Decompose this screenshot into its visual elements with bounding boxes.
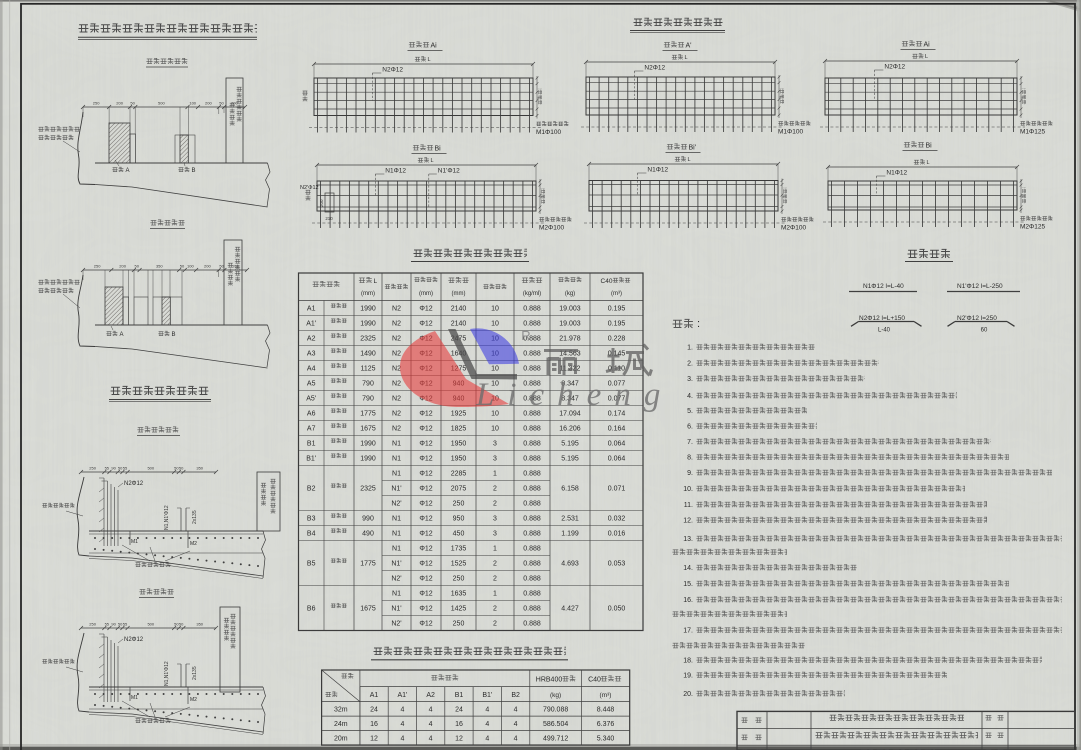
- svg-text:L: L: [927, 160, 930, 166]
- svg-text:790.088: 790.088: [543, 706, 568, 713]
- svg-text:90: 90: [111, 622, 116, 627]
- svg-text:A1: A1: [370, 692, 379, 699]
- svg-text:50: 50: [180, 264, 185, 269]
- svg-text:4: 4: [514, 706, 518, 713]
- svg-text:L: L: [431, 158, 434, 164]
- svg-text:0.053: 0.053: [608, 561, 626, 568]
- svg-text:1425: 1425: [451, 606, 467, 613]
- svg-text:24: 24: [370, 706, 378, 713]
- svg-text:(mm): (mm): [419, 291, 433, 297]
- svg-text:N2Φ12: N2Φ12: [382, 67, 403, 74]
- svg-text:3: 3: [493, 456, 497, 463]
- svg-text:0.888: 0.888: [523, 306, 541, 313]
- svg-text:N1,N1'Φ12: N1,N1'Φ12: [164, 661, 170, 686]
- svg-text:24: 24: [455, 706, 463, 713]
- svg-text:1950: 1950: [451, 441, 467, 448]
- svg-text:19.003: 19.003: [559, 321, 581, 328]
- svg-text:1925: 1925: [451, 411, 467, 418]
- svg-text:200: 200: [119, 264, 126, 269]
- svg-text::: :: [697, 318, 700, 330]
- svg-text:Φ12: Φ12: [419, 411, 432, 418]
- svg-text:(m³): (m³): [600, 692, 612, 699]
- svg-text:4.: 4.: [687, 393, 693, 400]
- svg-text:1125: 1125: [360, 366, 375, 373]
- svg-text:200: 200: [319, 199, 324, 207]
- svg-text:19.003: 19.003: [559, 306, 581, 313]
- svg-text:950: 950: [453, 516, 465, 523]
- svg-text:500: 500: [147, 466, 154, 471]
- svg-text:M2: M2: [190, 697, 197, 703]
- svg-text:M1Φ100: M1Φ100: [536, 129, 561, 136]
- svg-text:16: 16: [370, 721, 378, 728]
- svg-text:N2: N2: [392, 351, 401, 358]
- svg-text:Φ12: Φ12: [419, 516, 432, 523]
- svg-text:1: 1: [493, 546, 497, 553]
- svg-text:32m: 32m: [334, 706, 348, 713]
- svg-text:A7: A7: [307, 426, 316, 433]
- svg-text:250: 250: [453, 501, 465, 508]
- svg-text:2.: 2.: [687, 361, 693, 368]
- svg-text:500: 500: [158, 101, 165, 106]
- svg-text:0.016: 0.016: [608, 531, 626, 538]
- svg-text:M1: M1: [131, 695, 138, 701]
- svg-text:250: 250: [93, 101, 100, 106]
- svg-text:14.: 14.: [683, 565, 693, 572]
- svg-text:17.: 17.: [683, 628, 693, 635]
- svg-text:B2: B2: [511, 692, 520, 699]
- svg-text:1.: 1.: [687, 345, 693, 352]
- svg-text:0.064: 0.064: [608, 456, 626, 463]
- svg-text:N2': N2': [391, 576, 401, 583]
- svg-text:0.888: 0.888: [523, 591, 541, 598]
- svg-text:Φ12: Φ12: [419, 471, 432, 478]
- svg-text:2.531: 2.531: [561, 516, 579, 523]
- svg-text:Bi: Bi: [435, 146, 442, 153]
- svg-text:4: 4: [485, 735, 489, 742]
- svg-text:0.888: 0.888: [523, 351, 541, 358]
- svg-text:586.504: 586.504: [543, 721, 568, 728]
- svg-text:8.: 8.: [687, 455, 693, 462]
- svg-text:A2: A2: [426, 692, 435, 699]
- svg-text:1675: 1675: [360, 426, 376, 433]
- svg-text:4: 4: [514, 721, 518, 728]
- svg-text:8.448: 8.448: [597, 706, 615, 713]
- svg-text:2140: 2140: [451, 306, 467, 313]
- svg-text:12: 12: [455, 735, 463, 742]
- svg-text:Φ12: Φ12: [419, 486, 432, 493]
- svg-text:R: R: [521, 328, 530, 343]
- svg-text:(m³): (m³): [611, 291, 622, 297]
- svg-text:B3: B3: [307, 516, 316, 523]
- svg-text:19.: 19.: [683, 673, 693, 680]
- svg-text:250: 250: [94, 264, 101, 269]
- svg-text:HRB400: HRB400: [536, 677, 563, 684]
- svg-text:0.888: 0.888: [523, 561, 541, 568]
- svg-text:13.: 13.: [683, 536, 693, 543]
- svg-text:5.340: 5.340: [597, 735, 615, 742]
- svg-text:N2Φ12: N2Φ12: [124, 481, 144, 487]
- svg-text:N2Φ12: N2Φ12: [124, 637, 144, 643]
- svg-text:500: 500: [147, 622, 154, 627]
- svg-text:6.: 6.: [687, 424, 693, 431]
- svg-text:N2: N2: [392, 306, 401, 313]
- svg-text:3.: 3.: [687, 376, 693, 383]
- svg-text:2140: 2140: [451, 321, 467, 328]
- svg-text:N1Φ12: N1Φ12: [886, 170, 907, 177]
- svg-text:B5: B5: [307, 561, 316, 568]
- svg-text:N1': N1': [391, 561, 401, 568]
- svg-text:N1Φ12: N1Φ12: [647, 167, 668, 174]
- svg-text:0.064: 0.064: [608, 441, 626, 448]
- svg-text:N2: N2: [392, 336, 401, 343]
- svg-text:A5': A5': [306, 396, 316, 403]
- svg-text:N2Φ12: N2Φ12: [644, 65, 665, 72]
- svg-text:4.693: 4.693: [561, 561, 579, 568]
- svg-text:0.888: 0.888: [523, 486, 541, 493]
- svg-text:A: A: [126, 168, 130, 174]
- svg-text:350: 350: [196, 622, 203, 627]
- svg-text:N1': N1': [391, 486, 401, 493]
- svg-text:A6: A6: [307, 411, 316, 418]
- svg-text:4: 4: [514, 735, 518, 742]
- svg-text:9.: 9.: [687, 470, 693, 477]
- svg-text:6.376: 6.376: [597, 721, 615, 728]
- svg-text:0.888: 0.888: [523, 621, 541, 628]
- svg-text:4: 4: [429, 721, 433, 728]
- svg-text:(kg/ml): (kg/ml): [523, 291, 541, 297]
- svg-text:1735: 1735: [451, 546, 467, 553]
- svg-text:0.195: 0.195: [608, 306, 626, 313]
- svg-text:M2Φ100: M2Φ100: [539, 225, 564, 232]
- svg-text:0.071: 0.071: [608, 486, 626, 493]
- svg-text:1825: 1825: [451, 426, 467, 433]
- svg-text:1990: 1990: [360, 441, 376, 448]
- svg-text:M2: M2: [190, 541, 197, 547]
- svg-text:55: 55: [123, 466, 128, 471]
- svg-text:Φ12: Φ12: [419, 576, 432, 583]
- svg-text:Licheng: Licheng: [475, 377, 673, 413]
- svg-text:0.888: 0.888: [523, 471, 541, 478]
- svg-text:(kg): (kg): [565, 291, 575, 297]
- svg-text:24m: 24m: [334, 721, 348, 728]
- svg-text:2: 2: [493, 576, 497, 583]
- svg-text:N1Φ12 l=L-40: N1Φ12 l=L-40: [863, 283, 904, 290]
- svg-text:350: 350: [156, 264, 163, 269]
- svg-text:(mm): (mm): [361, 291, 375, 297]
- svg-text:21.978: 21.978: [559, 336, 581, 343]
- svg-text:L: L: [374, 278, 378, 285]
- svg-text:B1: B1: [307, 441, 316, 448]
- svg-text:Φ12: Φ12: [419, 621, 432, 628]
- svg-text:L: L: [925, 54, 928, 60]
- svg-text:N1,N1'Φ12: N1,N1'Φ12: [164, 505, 170, 530]
- svg-text:200: 200: [205, 101, 212, 106]
- svg-text:10: 10: [491, 321, 499, 328]
- svg-text:M1Φ100: M1Φ100: [778, 129, 803, 136]
- svg-text:Φ12: Φ12: [419, 501, 432, 508]
- svg-text:6.158: 6.158: [561, 486, 579, 493]
- svg-text:250: 250: [89, 622, 96, 627]
- svg-text:0.050: 0.050: [608, 606, 626, 613]
- svg-text:7.: 7.: [687, 439, 693, 446]
- svg-text:4: 4: [485, 721, 489, 728]
- svg-text:1: 1: [493, 591, 497, 598]
- svg-text:A': A': [686, 43, 692, 50]
- svg-text:20.: 20.: [683, 691, 693, 698]
- svg-text:200: 200: [204, 264, 211, 269]
- svg-text:0.888: 0.888: [523, 441, 541, 448]
- svg-text:B6: B6: [307, 606, 316, 613]
- svg-text:1: 1: [493, 471, 497, 478]
- svg-text:M2Φ100: M2Φ100: [781, 225, 806, 232]
- svg-text:790: 790: [362, 381, 374, 388]
- svg-text:N1: N1: [392, 516, 401, 523]
- svg-text:20m: 20m: [334, 735, 348, 742]
- svg-text:0.888: 0.888: [523, 366, 541, 373]
- svg-text:Φ12: Φ12: [419, 546, 432, 553]
- svg-text:N1: N1: [392, 456, 401, 463]
- svg-text:100: 100: [187, 264, 194, 269]
- svg-text:1525: 1525: [451, 561, 467, 568]
- svg-text:Φ12: Φ12: [419, 591, 432, 598]
- svg-text:5.195: 5.195: [561, 456, 579, 463]
- svg-text:100: 100: [189, 101, 196, 106]
- svg-text:0.888: 0.888: [523, 516, 541, 523]
- svg-text:2: 2: [493, 561, 497, 568]
- svg-text:499.712: 499.712: [543, 735, 568, 742]
- svg-text:N1': N1': [391, 606, 401, 613]
- svg-text:490: 490: [362, 531, 374, 538]
- svg-text:N2'Φ12: N2'Φ12: [300, 185, 319, 191]
- svg-text:N2: N2: [392, 411, 401, 418]
- svg-text:16: 16: [455, 721, 463, 728]
- svg-text:50: 50: [219, 101, 224, 106]
- svg-text:4: 4: [400, 735, 404, 742]
- svg-text:55: 55: [123, 622, 128, 627]
- svg-text:0.888: 0.888: [523, 321, 541, 328]
- svg-text:B1: B1: [455, 692, 464, 699]
- svg-text:Φ12: Φ12: [419, 561, 432, 568]
- svg-text:A1': A1': [306, 321, 316, 328]
- svg-text:18.: 18.: [683, 658, 693, 665]
- svg-text:0.888: 0.888: [523, 531, 541, 538]
- svg-text:Ai: Ai: [924, 42, 931, 49]
- svg-text:1775: 1775: [360, 561, 376, 568]
- svg-text:Φ12: Φ12: [419, 306, 432, 313]
- svg-text:2: 2: [493, 501, 497, 508]
- svg-text:16.206: 16.206: [559, 426, 581, 433]
- svg-text:11.: 11.: [684, 502, 693, 509]
- svg-text:C40: C40: [601, 278, 613, 285]
- svg-text:2075: 2075: [451, 486, 467, 493]
- svg-text:1990: 1990: [360, 321, 376, 328]
- svg-text:350: 350: [196, 466, 203, 471]
- svg-text:Ai: Ai: [431, 43, 438, 50]
- svg-text:10: 10: [491, 426, 499, 433]
- svg-text:0.195: 0.195: [608, 321, 626, 328]
- svg-text:250: 250: [453, 621, 465, 628]
- svg-text:12.: 12.: [683, 518, 693, 525]
- svg-text:0.888: 0.888: [523, 426, 541, 433]
- svg-text:2285: 2285: [451, 471, 467, 478]
- svg-text:N1: N1: [392, 591, 401, 598]
- svg-text:1675: 1675: [360, 606, 376, 613]
- svg-text:N1: N1: [392, 441, 401, 448]
- svg-text:1990: 1990: [360, 306, 376, 313]
- svg-text:N2: N2: [392, 381, 401, 388]
- svg-text:N2': N2': [391, 621, 401, 628]
- svg-text:50: 50: [179, 622, 184, 627]
- svg-text:B1': B1': [306, 456, 316, 463]
- svg-text:1490: 1490: [360, 351, 376, 358]
- svg-text:10: 10: [491, 366, 499, 373]
- svg-text:50: 50: [130, 101, 135, 106]
- svg-text:50: 50: [179, 466, 184, 471]
- svg-text:Φ12: Φ12: [419, 531, 432, 538]
- svg-text:1635: 1635: [451, 591, 467, 598]
- svg-text:B: B: [172, 332, 176, 338]
- svg-text:1.199: 1.199: [561, 531, 579, 538]
- svg-text:210: 210: [325, 216, 333, 221]
- svg-text:N1'Φ12: N1'Φ12: [438, 168, 460, 175]
- svg-text:4: 4: [485, 706, 489, 713]
- svg-text:0.888: 0.888: [523, 546, 541, 553]
- svg-text:250: 250: [89, 466, 96, 471]
- svg-text:790: 790: [362, 396, 374, 403]
- svg-text:0.888: 0.888: [523, 501, 541, 508]
- svg-text:L: L: [685, 55, 688, 61]
- svg-text:5.195: 5.195: [561, 441, 579, 448]
- svg-text:990: 990: [362, 516, 374, 523]
- svg-text:4: 4: [429, 735, 433, 742]
- svg-text:B: B: [192, 168, 196, 174]
- svg-text:250: 250: [453, 576, 465, 583]
- svg-text:5.: 5.: [687, 408, 693, 415]
- svg-text:N1'Φ12 l=L-250: N1'Φ12 l=L-250: [957, 283, 1003, 290]
- svg-text:N1: N1: [392, 546, 401, 553]
- svg-text:Φ12: Φ12: [419, 426, 432, 433]
- svg-text:M2Φ125: M2Φ125: [1020, 224, 1045, 231]
- svg-text:N2: N2: [392, 321, 401, 328]
- svg-text:2x135: 2x135: [192, 666, 198, 680]
- svg-text:0.032: 0.032: [608, 516, 626, 523]
- svg-text:N2': N2': [391, 501, 401, 508]
- svg-text:A1': A1': [397, 692, 407, 699]
- svg-text:1950: 1950: [451, 456, 467, 463]
- svg-text:N1: N1: [392, 471, 401, 478]
- svg-text:0.888: 0.888: [523, 606, 541, 613]
- svg-text:L: L: [428, 57, 431, 63]
- svg-text:2: 2: [493, 606, 497, 613]
- svg-text:3: 3: [493, 441, 497, 448]
- svg-text:N2: N2: [392, 366, 401, 373]
- svg-text:3: 3: [493, 531, 497, 538]
- svg-text:M1Φ125: M1Φ125: [1020, 129, 1045, 136]
- svg-text:2: 2: [493, 486, 497, 493]
- svg-text:50: 50: [134, 264, 139, 269]
- svg-text:0.888: 0.888: [523, 576, 541, 583]
- svg-text:200: 200: [116, 101, 123, 106]
- svg-text:B4: B4: [307, 531, 316, 538]
- svg-text:C40: C40: [588, 677, 601, 684]
- svg-text:(kg): (kg): [550, 692, 561, 699]
- svg-text:1990: 1990: [360, 456, 376, 463]
- svg-text:(mm): (mm): [452, 291, 466, 297]
- svg-text:L: L: [688, 157, 691, 163]
- svg-text:16.: 16.: [683, 597, 693, 604]
- svg-text:Φ12: Φ12: [419, 321, 432, 328]
- svg-text:15.: 15.: [683, 581, 693, 588]
- svg-text:4: 4: [400, 721, 404, 728]
- svg-text:B1': B1': [482, 692, 492, 699]
- svg-text:N1Φ12: N1Φ12: [385, 168, 406, 175]
- svg-text:0.888: 0.888: [523, 456, 541, 463]
- svg-text:3: 3: [493, 516, 497, 523]
- svg-text:0.228: 0.228: [608, 336, 626, 343]
- svg-text:450: 450: [453, 531, 465, 538]
- svg-text:1775: 1775: [360, 411, 376, 418]
- svg-text:N2Φ12: N2Φ12: [884, 64, 905, 71]
- svg-text:4: 4: [429, 706, 433, 713]
- svg-text:A1: A1: [307, 306, 316, 313]
- svg-text:10: 10: [491, 306, 499, 313]
- svg-text:55: 55: [105, 622, 110, 627]
- svg-text:M1: M1: [131, 539, 138, 545]
- svg-text:Bi': Bi': [689, 145, 697, 152]
- svg-text:A5: A5: [307, 381, 316, 388]
- svg-text:Φ12: Φ12: [419, 441, 432, 448]
- svg-text:4: 4: [400, 706, 404, 713]
- svg-text:B2: B2: [307, 486, 316, 493]
- svg-text:A3: A3: [307, 351, 316, 358]
- svg-text:A: A: [120, 332, 124, 338]
- svg-text:N2: N2: [392, 396, 401, 403]
- svg-text:2: 2: [493, 621, 497, 628]
- svg-text:2325: 2325: [360, 486, 376, 493]
- svg-text:Φ12: Φ12: [419, 456, 432, 463]
- svg-text:12: 12: [370, 735, 378, 742]
- svg-text:60: 60: [981, 328, 988, 334]
- svg-text:90: 90: [111, 466, 116, 471]
- svg-text:Bi: Bi: [926, 143, 933, 150]
- svg-text:10.: 10.: [683, 486, 693, 493]
- svg-text:L-40: L-40: [878, 328, 891, 334]
- svg-text:55: 55: [105, 466, 110, 471]
- svg-text:N2: N2: [392, 426, 401, 433]
- svg-text:Φ12: Φ12: [419, 606, 432, 613]
- svg-text:2x135: 2x135: [192, 510, 198, 524]
- svg-text:A4: A4: [307, 366, 316, 373]
- svg-text:A2: A2: [307, 336, 316, 343]
- svg-text:2325: 2325: [360, 336, 376, 343]
- svg-text:4.427: 4.427: [561, 606, 579, 613]
- svg-text:N1: N1: [392, 531, 401, 538]
- svg-text:0.164: 0.164: [608, 426, 626, 433]
